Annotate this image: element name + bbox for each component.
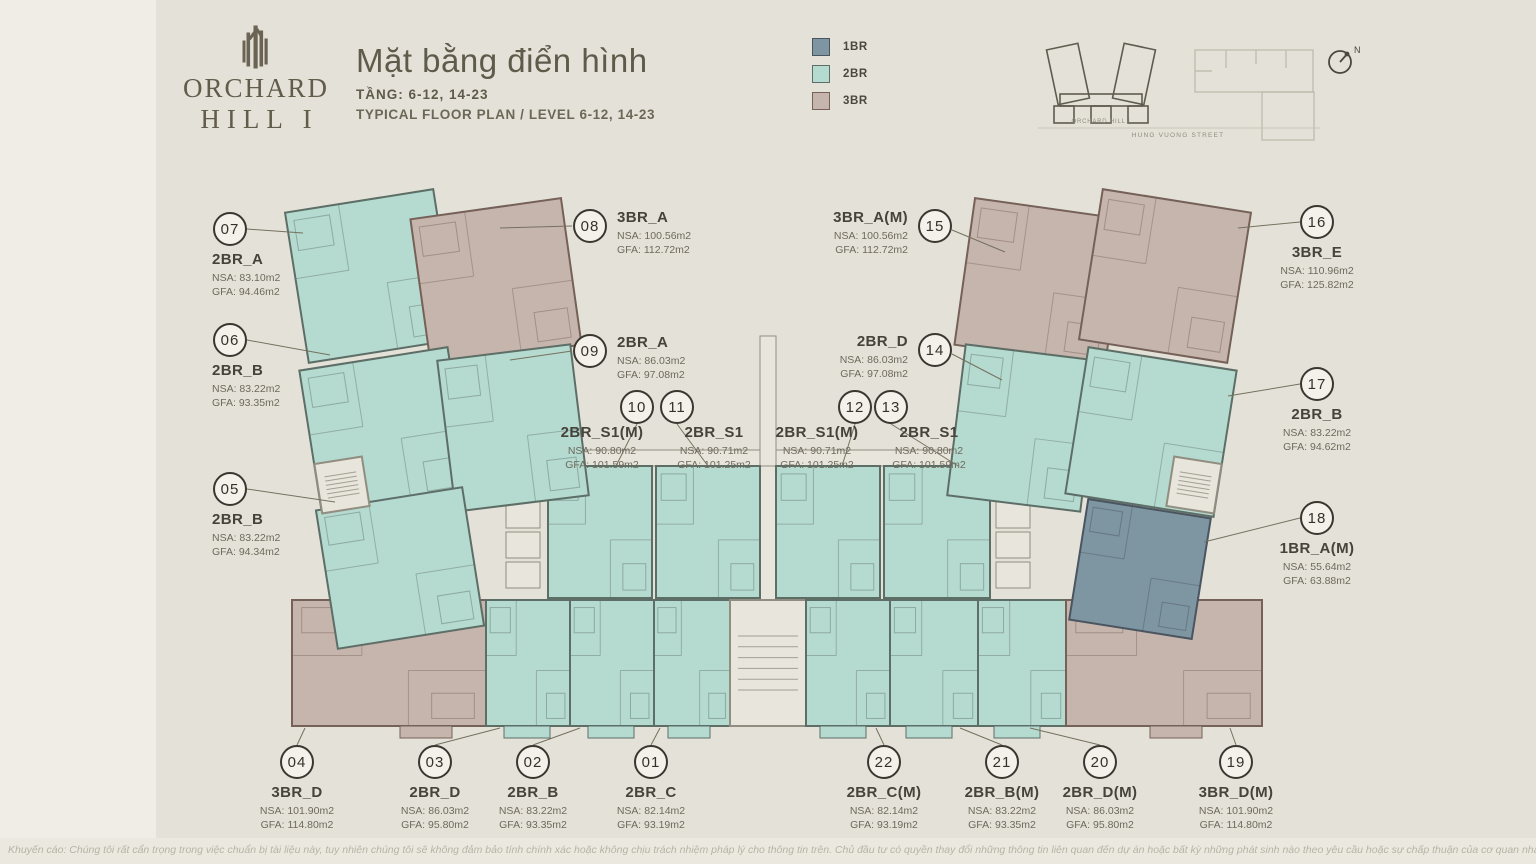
title-block: Mặt bằng điển hình TẦNG: 6-12, 14-23 TYP… — [356, 42, 655, 122]
unit-nsa: NSA: 82.14m2 — [561, 805, 741, 819]
unit-number-badge: 09 — [573, 334, 607, 368]
unit-gfa: GFA: 94.46m2 — [212, 286, 362, 300]
plan-unit-2br — [890, 600, 978, 726]
unit-info: 3BR_DNSA: 101.90m2GFA: 114.80m2 — [207, 784, 387, 832]
unit-name: 3BR_D(M) — [1146, 784, 1326, 801]
unit-nsa: NSA: 90.80m2 — [522, 445, 682, 459]
unit-info: 2BR_ANSA: 83.10m2GFA: 94.46m2 — [212, 251, 362, 299]
plan-unit-2br — [316, 487, 484, 648]
plan-unit-3br — [292, 600, 486, 726]
unit-number-badge: 05 — [213, 472, 247, 506]
legend-swatch-3br — [812, 92, 830, 110]
unit-nsa: NSA: 90.71m2 — [737, 445, 897, 459]
unit-nsa: NSA: 90.80m2 — [849, 445, 1009, 459]
unit-number-badge: 10 — [620, 390, 654, 424]
page-title: Mặt bằng điển hình — [356, 42, 655, 80]
unit-nsa: NSA: 86.03m2 — [345, 805, 525, 819]
unit-info: 2BR_BNSA: 83.22m2GFA: 94.34m2 — [212, 511, 362, 559]
unit-gfa: GFA: 97.08m2 — [617, 369, 787, 383]
unit-name: 2BR_C(M) — [794, 784, 974, 801]
legend-row-1br: 1BR — [812, 33, 868, 60]
unit-name: 2BR_S1 — [849, 424, 1009, 441]
unit-gfa: GFA: 112.72m2 — [738, 244, 908, 258]
unit-name: 2BR_D(M) — [1010, 784, 1190, 801]
unit-number-badge: 06 — [213, 323, 247, 357]
unit-nsa: NSA: 83.22m2 — [212, 532, 362, 546]
unit-nsa: NSA: 83.22m2 — [912, 805, 1092, 819]
unit-name: 2BR_A — [617, 334, 787, 351]
level-subtitle-vi: TẦNG: 6-12, 14-23 — [356, 87, 655, 102]
plan-unit-2br — [588, 726, 634, 738]
legend-swatch-2br — [812, 65, 830, 83]
plan-unit-3br — [1150, 726, 1202, 738]
unit-number-badge: 03 — [418, 745, 452, 779]
unit-gfa: GFA: 93.35m2 — [443, 819, 623, 833]
legend: 1BR 2BR 3BR — [812, 33, 868, 114]
unit-name: 2BR_B — [212, 362, 362, 379]
unit-info: 3BR_A(M)NSA: 100.56m2GFA: 112.72m2 — [738, 209, 908, 257]
plan-unit-2br — [299, 347, 470, 517]
unit-nsa: NSA: 55.64m2 — [1227, 561, 1407, 575]
unit-info: 2BR_C(M)NSA: 82.14m2GFA: 93.19m2 — [794, 784, 974, 832]
unit-gfa: GFA: 114.80m2 — [207, 819, 387, 833]
unit-number-badge: 12 — [838, 390, 872, 424]
unit-gfa: GFA: 97.08m2 — [738, 368, 908, 382]
unit-nsa: NSA: 83.22m2 — [443, 805, 623, 819]
unit-gfa: GFA: 101.59m2 — [522, 459, 682, 473]
unit-gfa: GFA: 114.80m2 — [1146, 819, 1326, 833]
plan-core — [996, 532, 1030, 558]
plan-unit-2br — [906, 726, 952, 738]
plan-core — [506, 562, 540, 588]
plan-unit-2br — [1065, 347, 1236, 517]
unit-nsa: NSA: 110.96m2 — [1227, 265, 1407, 279]
page-left-margin — [0, 0, 156, 864]
plan-core — [760, 336, 776, 466]
unit-gfa: GFA: 125.82m2 — [1227, 279, 1407, 293]
unit-nsa: NSA: 100.56m2 — [738, 230, 908, 244]
plan-unit-3br — [954, 198, 1125, 366]
unit-number-badge: 02 — [516, 745, 550, 779]
plan-unit-2br — [486, 600, 570, 726]
unit-gfa: GFA: 94.62m2 — [1227, 441, 1407, 455]
unit-name: 3BR_A — [617, 209, 787, 226]
plan-core — [314, 457, 369, 514]
unit-name: 2BR_S1 — [634, 424, 794, 441]
plan-core — [480, 450, 1056, 466]
unit-name: 3BR_A(M) — [738, 209, 908, 226]
unit-nsa: NSA: 83.22m2 — [212, 383, 362, 397]
unit-name: 2BR_S1(M) — [522, 424, 682, 441]
unit-info: 2BR_BNSA: 83.22m2GFA: 93.35m2 — [212, 362, 362, 410]
disclaimer-text: Khuyến cáo: Chúng tôi rất cẩn trọng tron… — [0, 838, 1536, 863]
unit-name: 1BR_A(M) — [1227, 540, 1407, 557]
plan-unit-2br — [820, 726, 866, 738]
callout-leader-lines — [247, 222, 1300, 745]
unit-gfa: GFA: 94.34m2 — [212, 546, 362, 560]
unit-nsa: NSA: 90.71m2 — [634, 445, 794, 459]
unit-info: 2BR_S1(M)NSA: 90.71m2GFA: 101.25m2 — [737, 424, 897, 472]
unit-info: 2BR_S1(M)NSA: 90.80m2GFA: 101.59m2 — [522, 424, 682, 472]
unit-info: 2BR_DNSA: 86.03m2GFA: 97.08m2 — [738, 333, 908, 381]
disclaimer-bar: Khuyến cáo: Chúng tôi rất cẩn trọng tron… — [0, 838, 1536, 864]
plan-core — [506, 502, 540, 528]
plan-unit-2br — [548, 466, 652, 598]
unit-info: 2BR_BNSA: 83.22m2GFA: 93.35m2 — [443, 784, 623, 832]
level-subtitle-en: TYPICAL FLOOR PLAN / LEVEL 6-12, 14-23 — [356, 107, 655, 122]
unit-number-badge: 21 — [985, 745, 1019, 779]
unit-info: 3BR_D(M)NSA: 101.90m2GFA: 114.80m2 — [1146, 784, 1326, 832]
unit-number-badge: 17 — [1300, 367, 1334, 401]
unit-gfa: GFA: 63.88m2 — [1227, 575, 1407, 589]
unit-nsa: NSA: 100.56m2 — [617, 230, 787, 244]
plan-unit-3br — [410, 198, 581, 366]
unit-name: 2BR_D — [345, 784, 525, 801]
unit-gfa: GFA: 101.59m2 — [849, 459, 1009, 473]
plan-unit-2br — [668, 726, 710, 738]
unit-info: 2BR_D(M)NSA: 86.03m2GFA: 95.80m2 — [1010, 784, 1190, 832]
unit-nsa: NSA: 82.14m2 — [794, 805, 974, 819]
unit-nsa: NSA: 86.03m2 — [738, 354, 908, 368]
unit-name: 3BR_D — [207, 784, 387, 801]
unit-info: 2BR_BNSA: 83.22m2GFA: 94.62m2 — [1227, 406, 1407, 454]
legend-swatch-1br — [812, 38, 830, 56]
plan-core — [996, 472, 1030, 498]
plan-unit-2br — [947, 344, 1099, 511]
unit-info: 2BR_CNSA: 82.14m2GFA: 93.19m2 — [561, 784, 741, 832]
legend-label-3br: 3BR — [843, 95, 868, 107]
legend-row-3br: 3BR — [812, 87, 868, 114]
unit-info: 2BR_S1NSA: 90.71m2GFA: 101.25m2 — [634, 424, 794, 472]
compass-n-label: N — [1354, 45, 1361, 55]
plan-core — [996, 502, 1030, 528]
unit-gfa: GFA: 95.80m2 — [1010, 819, 1190, 833]
compass-icon: N — [1329, 45, 1361, 73]
unit-number-badge: 22 — [867, 745, 901, 779]
plan-core — [506, 472, 540, 498]
brand-name-line1: ORCHARD — [178, 74, 334, 104]
plan-unit-2br — [437, 344, 589, 511]
unit-name: 2BR_A — [212, 251, 362, 268]
legend-label-2br: 2BR — [843, 68, 868, 80]
brand-name-line2: HILL I — [178, 104, 334, 135]
site-locator: ORCHARD HILL I HUNG VUONG STREET N — [1030, 40, 1366, 142]
unit-nsa: NSA: 86.03m2 — [1010, 805, 1190, 819]
plan-unit-1br — [1069, 499, 1211, 639]
plan-unit-2br — [806, 600, 890, 726]
unit-number-badge: 04 — [280, 745, 314, 779]
floorplan-page: ORCHARD HILL I Mặt bằng điển hình TẦNG: … — [0, 0, 1536, 864]
unit-name: 2BR_B — [1227, 406, 1407, 423]
unit-nsa: NSA: 83.10m2 — [212, 272, 362, 286]
plan-unit-2br — [884, 466, 990, 598]
unit-number-badge: 15 — [918, 209, 952, 243]
plan-core — [730, 600, 806, 726]
unit-info: 3BR_ANSA: 100.56m2GFA: 112.72m2 — [617, 209, 787, 257]
unit-number-badge: 18 — [1300, 501, 1334, 535]
unit-nsa: NSA: 86.03m2 — [617, 355, 787, 369]
street-label: HUNG VUONG STREET — [1132, 132, 1225, 139]
unit-number-badge: 19 — [1219, 745, 1253, 779]
unit-gfa: GFA: 93.19m2 — [561, 819, 741, 833]
unit-gfa: GFA: 93.35m2 — [912, 819, 1092, 833]
locator-building-label: ORCHARD HILL I — [1072, 119, 1131, 125]
unit-nsa: NSA: 83.22m2 — [1227, 427, 1407, 441]
unit-name: 2BR_C — [561, 784, 741, 801]
unit-name: 3BR_E — [1227, 244, 1407, 261]
unit-nsa: NSA: 101.90m2 — [207, 805, 387, 819]
unit-number-badge: 16 — [1300, 205, 1334, 239]
unit-name: 2BR_B — [212, 511, 362, 528]
unit-gfa: GFA: 112.72m2 — [617, 244, 787, 258]
unit-gfa: GFA: 101.25m2 — [737, 459, 897, 473]
unit-number-badge: 14 — [918, 333, 952, 367]
plan-unit-2br — [656, 466, 760, 598]
unit-name: 2BR_S1(M) — [737, 424, 897, 441]
unit-number-badge: 08 — [573, 209, 607, 243]
unit-info: 2BR_B(M)NSA: 83.22m2GFA: 93.35m2 — [912, 784, 1092, 832]
unit-number-badge: 07 — [213, 212, 247, 246]
unit-number-badge: 20 — [1083, 745, 1117, 779]
legend-label-1br: 1BR — [843, 41, 868, 53]
unit-info: 2BR_S1NSA: 90.80m2GFA: 101.59m2 — [849, 424, 1009, 472]
plan-core — [760, 466, 776, 600]
unit-info: 1BR_A(M)NSA: 55.64m2GFA: 63.88m2 — [1227, 540, 1407, 588]
plan-unit-3br — [400, 726, 452, 738]
unit-name: 2BR_B(M) — [912, 784, 1092, 801]
plan-unit-2br — [978, 600, 1066, 726]
plan-core — [1166, 457, 1221, 514]
plan-unit-2br — [654, 600, 730, 726]
plan-unit-2br — [570, 600, 654, 726]
unit-number-badge: 01 — [634, 745, 668, 779]
unit-name: 2BR_D — [738, 333, 908, 350]
unit-info: 3BR_ENSA: 110.96m2GFA: 125.82m2 — [1227, 244, 1407, 292]
unit-gfa: GFA: 93.19m2 — [794, 819, 974, 833]
unit-gfa: GFA: 95.80m2 — [345, 819, 525, 833]
plan-core — [506, 532, 540, 558]
unit-gfa: GFA: 101.25m2 — [634, 459, 794, 473]
unit-nsa: NSA: 101.90m2 — [1146, 805, 1326, 819]
unit-gfa: GFA: 93.35m2 — [212, 397, 362, 411]
adjacent-building-outline — [1195, 50, 1314, 140]
unit-info: 2BR_ANSA: 86.03m2GFA: 97.08m2 — [617, 334, 787, 382]
plan-unit-2br — [776, 466, 880, 598]
brand-logo: ORCHARD HILL I — [178, 24, 334, 135]
unit-name: 2BR_B — [443, 784, 623, 801]
plan-core — [996, 562, 1030, 588]
site-building-outline — [1047, 43, 1156, 123]
legend-row-2br: 2BR — [812, 60, 868, 87]
plan-unit-2br — [504, 726, 550, 738]
unit-info: 2BR_DNSA: 86.03m2GFA: 95.80m2 — [345, 784, 525, 832]
plan-unit-2br — [285, 189, 457, 363]
unit-number-badge: 11 — [660, 390, 694, 424]
unit-number-badge: 13 — [874, 390, 908, 424]
plan-unit-3br — [1079, 189, 1251, 363]
plan-unit-3br — [1066, 600, 1262, 726]
brand-tree-icon — [235, 24, 277, 72]
plan-unit-2br — [994, 726, 1040, 738]
